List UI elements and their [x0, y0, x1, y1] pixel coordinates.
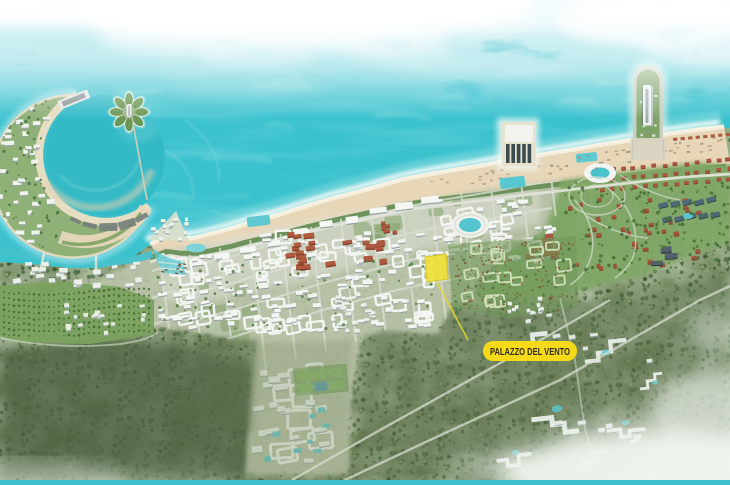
- svg-text:PALAZZO DEL VENTO: PALAZZO DEL VENTO: [490, 347, 570, 358]
